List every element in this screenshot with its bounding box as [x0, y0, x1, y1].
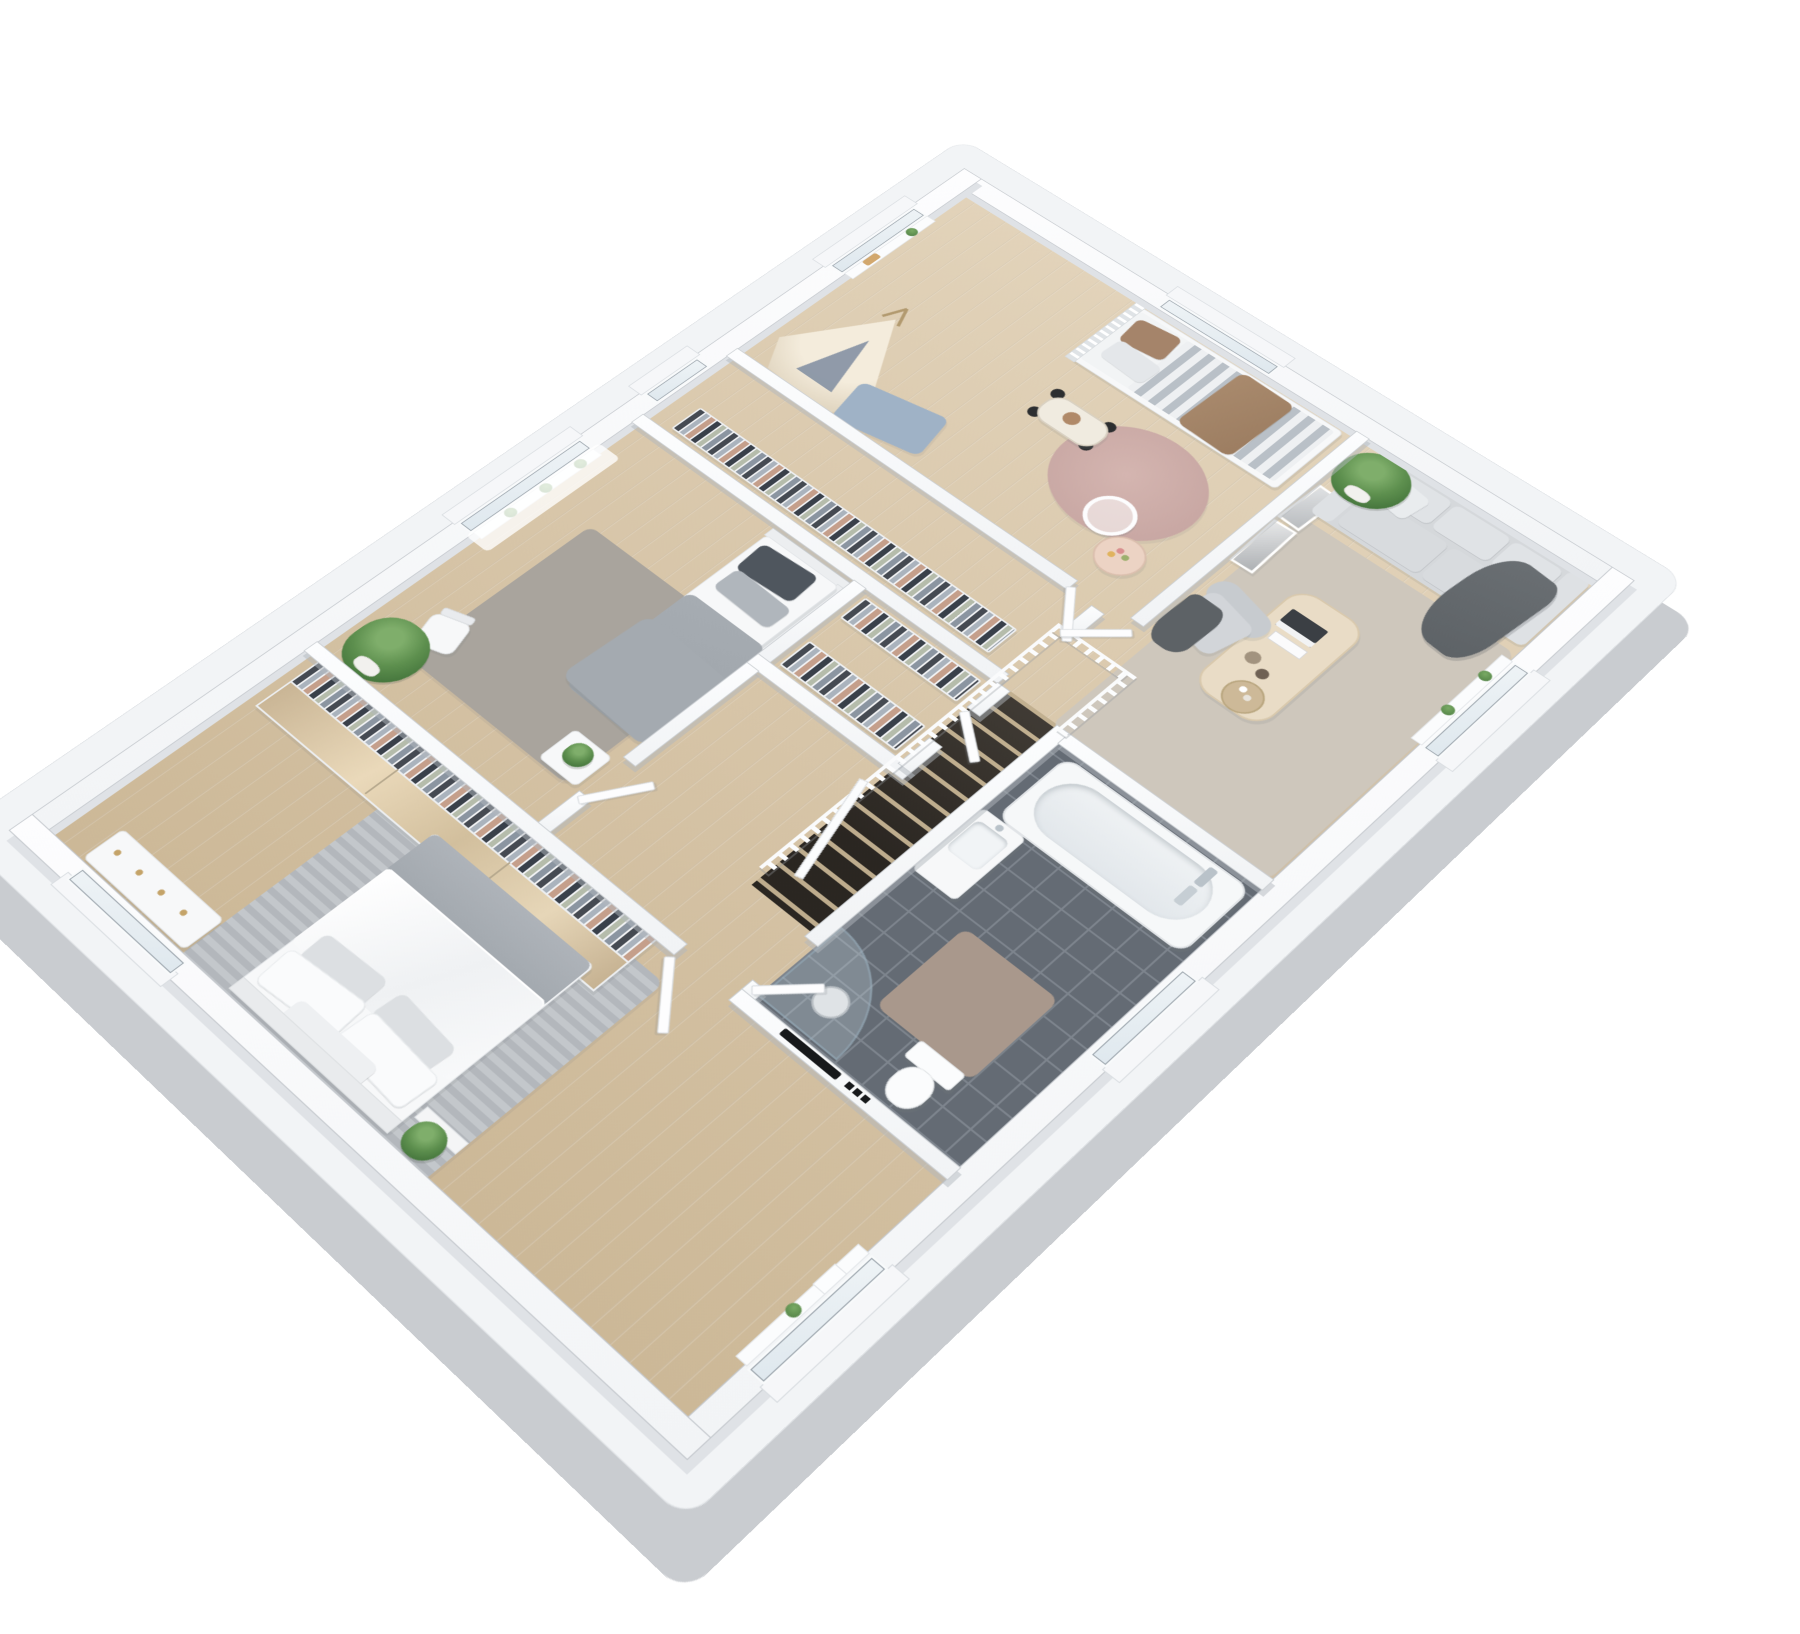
floorplan-render	[0, 0, 1800, 1634]
closet-upper-door	[1060, 629, 1133, 637]
isometric-scene	[10, 168, 1633, 1457]
